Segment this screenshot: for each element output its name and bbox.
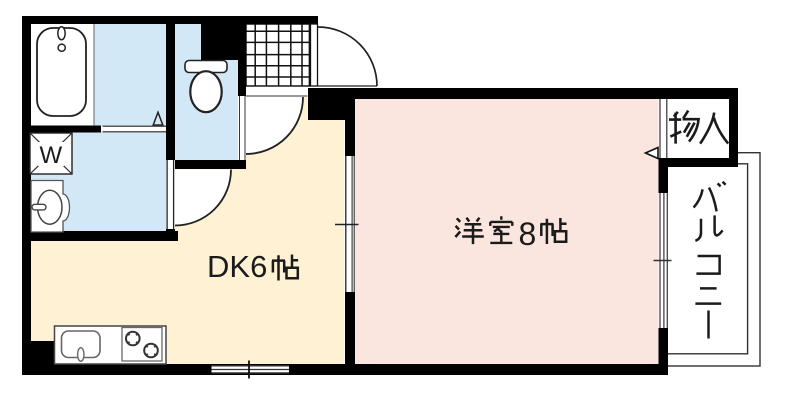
svg-text:W: W <box>39 142 62 169</box>
svg-text:8: 8 <box>519 216 537 252</box>
svg-text:DK6: DK6 <box>207 249 267 284</box>
